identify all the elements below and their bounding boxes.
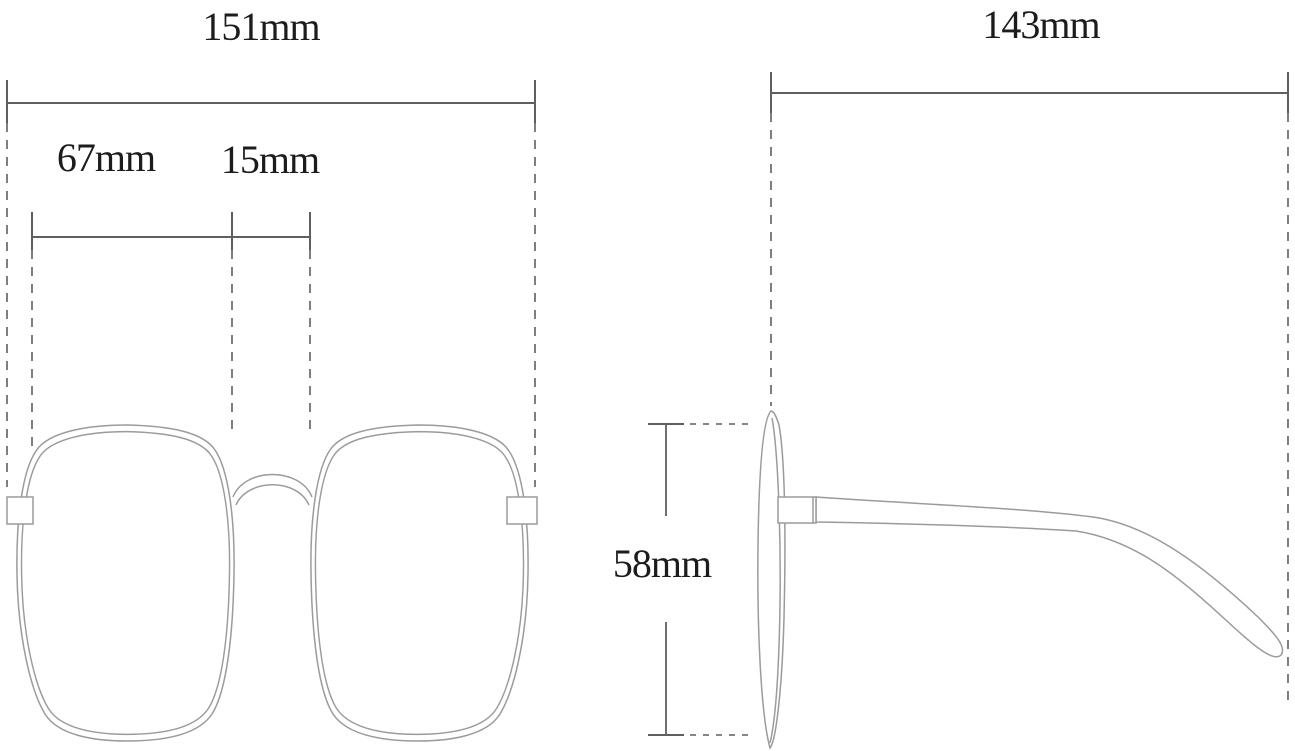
glasses-dimension-diagram: 151mm 67mm 15mm 143mm 58mm: [0, 0, 1295, 751]
lens-bridge-dimension: [32, 212, 310, 452]
bridge-lower-arc: [236, 485, 309, 505]
left-lens: [17, 425, 234, 741]
left-lens-inner-rim: [22, 432, 230, 735]
frame-side: [758, 411, 1283, 748]
bridge-width-label: 15mm: [190, 140, 350, 180]
lens-width-label: 67mm: [26, 138, 186, 178]
total-width-label: 151mm: [181, 7, 341, 47]
side-lens-profile: [758, 411, 785, 748]
side-hinge: [778, 497, 816, 523]
side-hinge-block: [778, 497, 816, 523]
temple-length-label: 143mm: [961, 5, 1121, 45]
right-lens-outer-rim: [311, 425, 528, 741]
diagram-line-art: [0, 0, 1295, 751]
temple-arm: [816, 497, 1283, 657]
side-view: [648, 72, 1288, 748]
bridge: [233, 475, 312, 506]
lens-height-label: 58mm: [582, 544, 742, 584]
left-hinge-tab: [7, 497, 33, 524]
left-lens-outer-rim: [17, 425, 234, 741]
frame-front: [7, 425, 537, 741]
right-lens: [311, 425, 528, 741]
right-lens-inner-rim: [315, 432, 523, 735]
right-hinge-tab: [507, 497, 537, 524]
